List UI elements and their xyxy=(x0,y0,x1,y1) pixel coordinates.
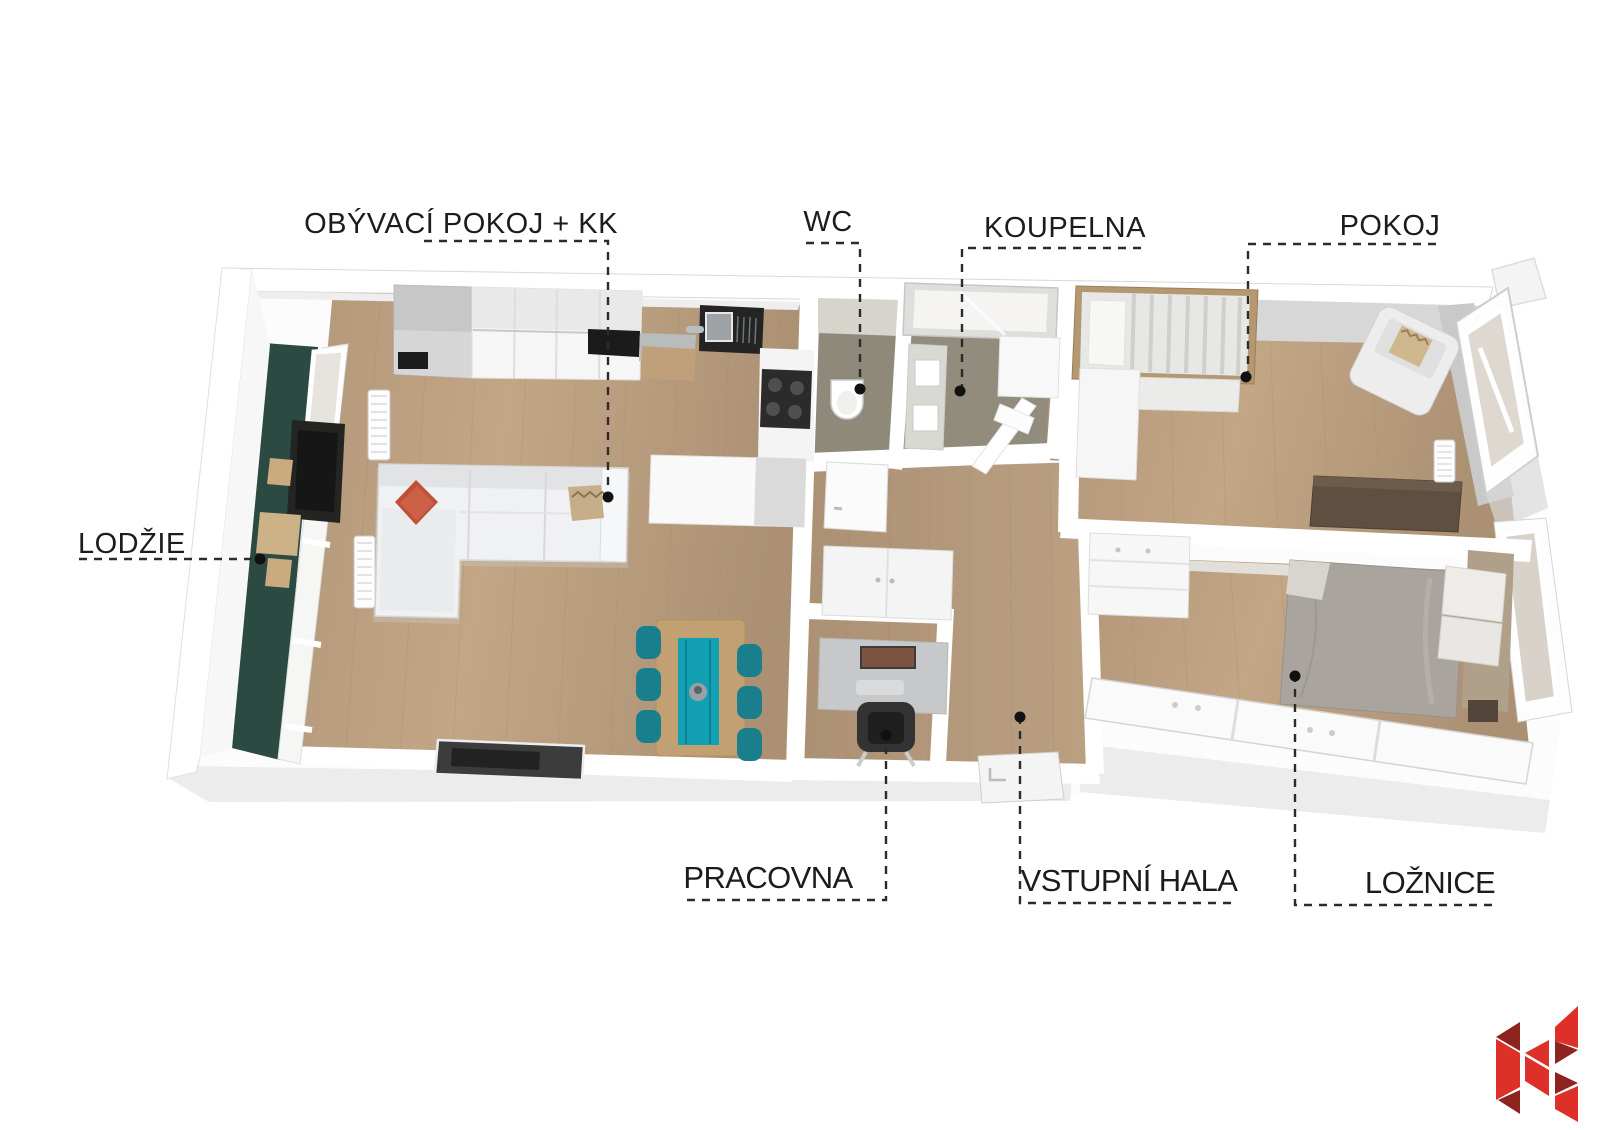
svg-text:OBÝVACÍ POKOJ + KK: OBÝVACÍ POKOJ + KK xyxy=(304,207,618,240)
svg-text:POKOJ: POKOJ xyxy=(1340,210,1441,242)
svg-text:LOŽNICE: LOŽNICE xyxy=(1365,865,1495,900)
svg-text:LODŽIE: LODŽIE xyxy=(78,527,186,560)
svg-text:VSTUPNÍ HALA: VSTUPNÍ HALA xyxy=(1021,863,1239,898)
svg-text:PRACOVNA: PRACOVNA xyxy=(683,860,853,895)
svg-text:WC: WC xyxy=(803,206,852,238)
svg-text:KOUPELNA: KOUPELNA xyxy=(984,212,1146,244)
